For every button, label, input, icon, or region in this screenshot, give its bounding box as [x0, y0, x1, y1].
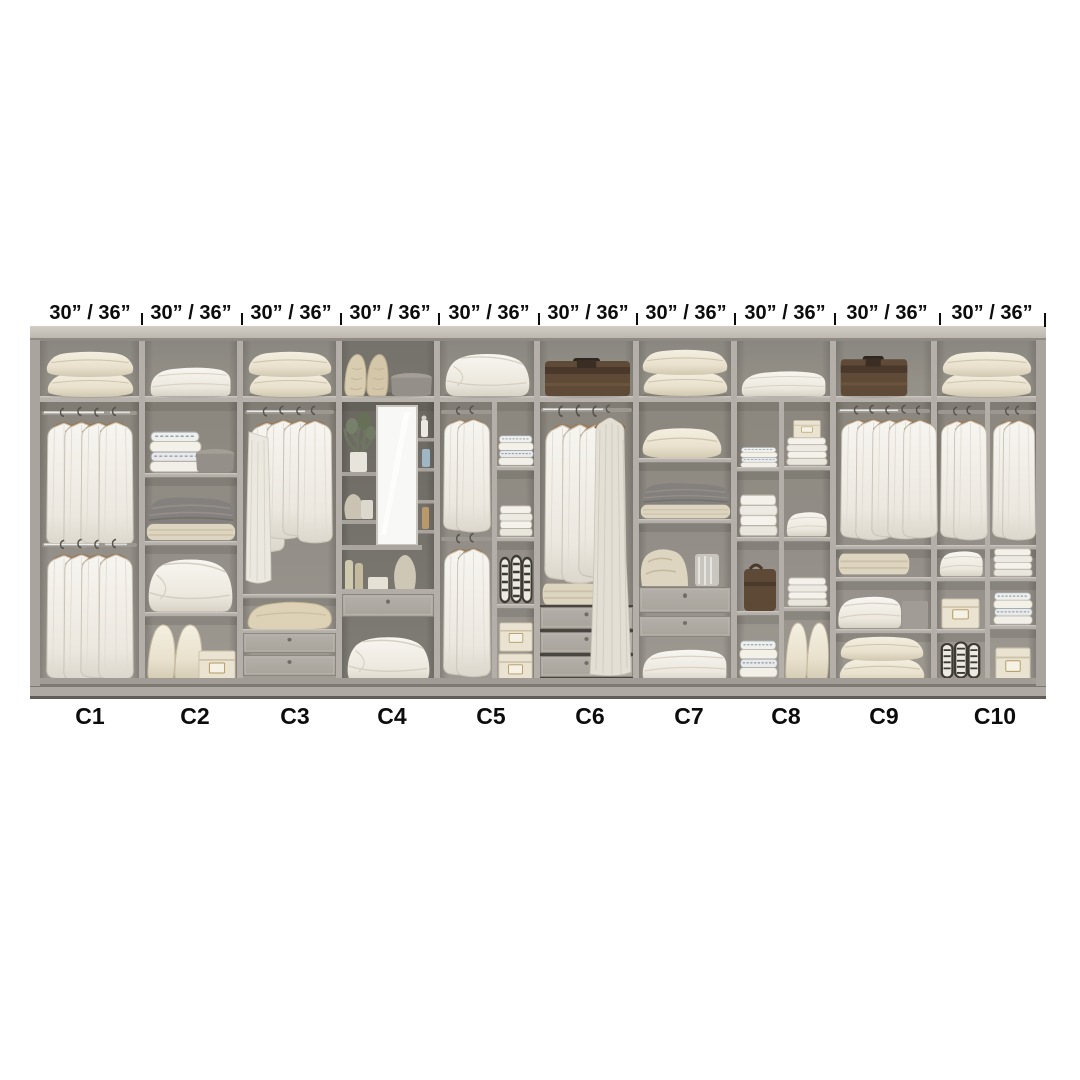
svg-text:30” / 36”: 30” / 36”	[744, 302, 825, 324]
svg-text:C7: C7	[674, 703, 703, 729]
svg-text:30” / 36”: 30” / 36”	[951, 302, 1032, 324]
svg-text:C2: C2	[180, 703, 209, 729]
svg-text:C5: C5	[476, 703, 506, 729]
svg-text:30” / 36”: 30” / 36”	[547, 302, 628, 324]
svg-text:30” / 36”: 30” / 36”	[49, 302, 130, 324]
svg-text:C4: C4	[377, 703, 407, 729]
svg-text:C3: C3	[280, 703, 309, 729]
svg-text:30” / 36”: 30” / 36”	[846, 302, 927, 324]
svg-text:C8: C8	[771, 703, 801, 729]
svg-text:C9: C9	[869, 703, 898, 729]
svg-text:C6: C6	[575, 703, 604, 729]
svg-text:C10: C10	[974, 703, 1016, 729]
svg-text:30” / 36”: 30” / 36”	[250, 302, 331, 324]
svg-text:30” / 36”: 30” / 36”	[150, 302, 231, 324]
svg-text:30” / 36”: 30” / 36”	[645, 302, 726, 324]
svg-text:30” / 36”: 30” / 36”	[448, 302, 529, 324]
svg-text:C1: C1	[75, 703, 105, 729]
svg-text:30” / 36”: 30” / 36”	[349, 302, 430, 324]
